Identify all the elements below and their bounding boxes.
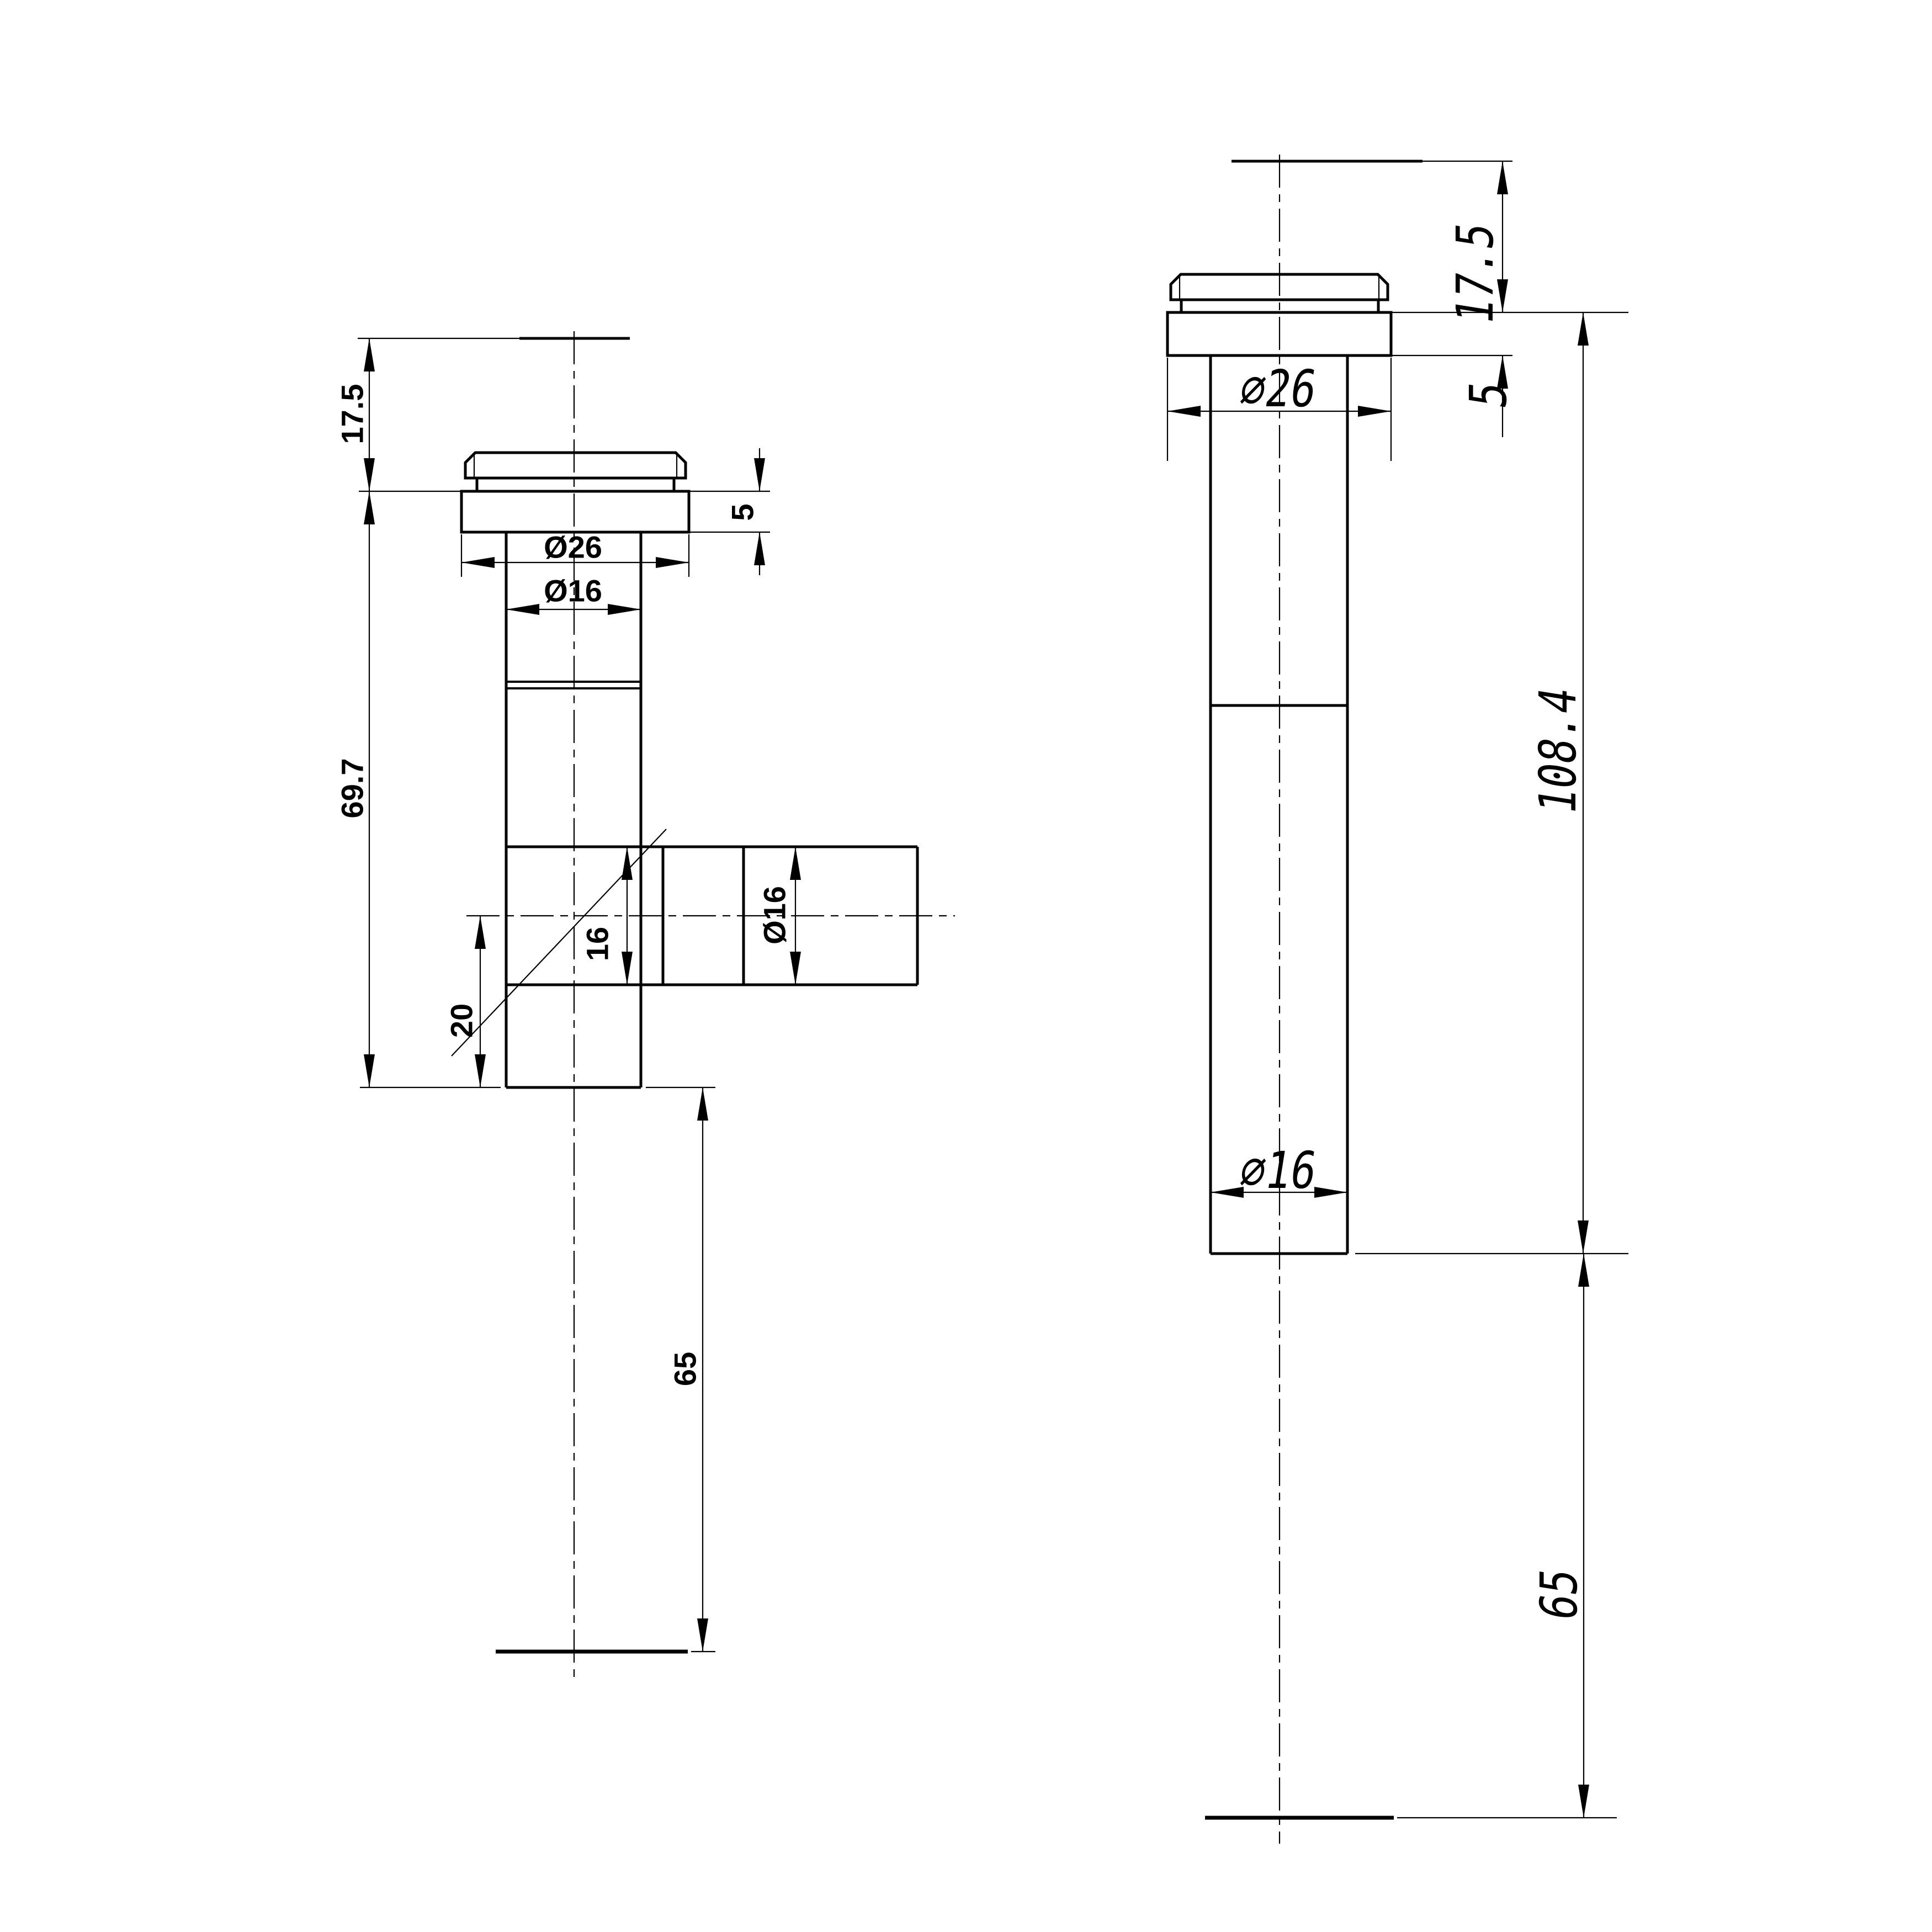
left-view-extension-lines: [359, 491, 770, 1652]
technical-drawing-page: 17.5 69.7 20 65 5 Ø26 Ø16 16 Ø16: [0, 0, 1932, 1932]
dim-label-d26-left: Ø26: [544, 530, 602, 565]
dim-label-16-arm-left: 16: [580, 927, 615, 961]
dim-label-5-left: 5: [725, 503, 760, 521]
right-view-dimension-labels: 17.5 5 ∅26 ∅16 108.4 65: [1236, 219, 1589, 1624]
dim-label-17-5-right: 17.5: [1445, 219, 1504, 328]
left-view-dimension-labels: 17.5 69.7 20 65 5 Ø26 Ø16 16 Ø16: [335, 384, 792, 1387]
dim-label-65-left: 65: [668, 1352, 703, 1386]
dim-label-65-right: 65: [1529, 1564, 1588, 1624]
drawing-svg: 17.5 69.7 20 65 5 Ø26 Ø16 16 Ø16: [0, 0, 1932, 1932]
right-view-dimension-lines: [1167, 161, 1589, 1818]
dim-label-69-7-left: 69.7: [335, 758, 370, 819]
right-view: 17.5 5 ∅26 ∅16 108.4 65: [1167, 155, 1628, 1844]
dim-label-d16-right: ∅16: [1236, 1140, 1320, 1199]
dim-label-d26-right: ∅26: [1236, 359, 1320, 418]
dim-label-17-5-left: 17.5: [335, 384, 370, 444]
left-view: 17.5 69.7 20 65 5 Ø26 Ø16 16 Ø16: [335, 331, 955, 1678]
dim-label-d16-left: Ø16: [544, 574, 602, 608]
dim-label-108-4-right: 108.4: [1528, 683, 1587, 818]
dim-label-20-left: 20: [444, 1004, 479, 1038]
right-view-outline: [1167, 161, 1512, 1818]
dim-label-d16-arm-left: Ø16: [757, 886, 792, 944]
left-view-outline: [358, 338, 917, 1652]
dim-label-5-right: 5: [1458, 378, 1517, 412]
